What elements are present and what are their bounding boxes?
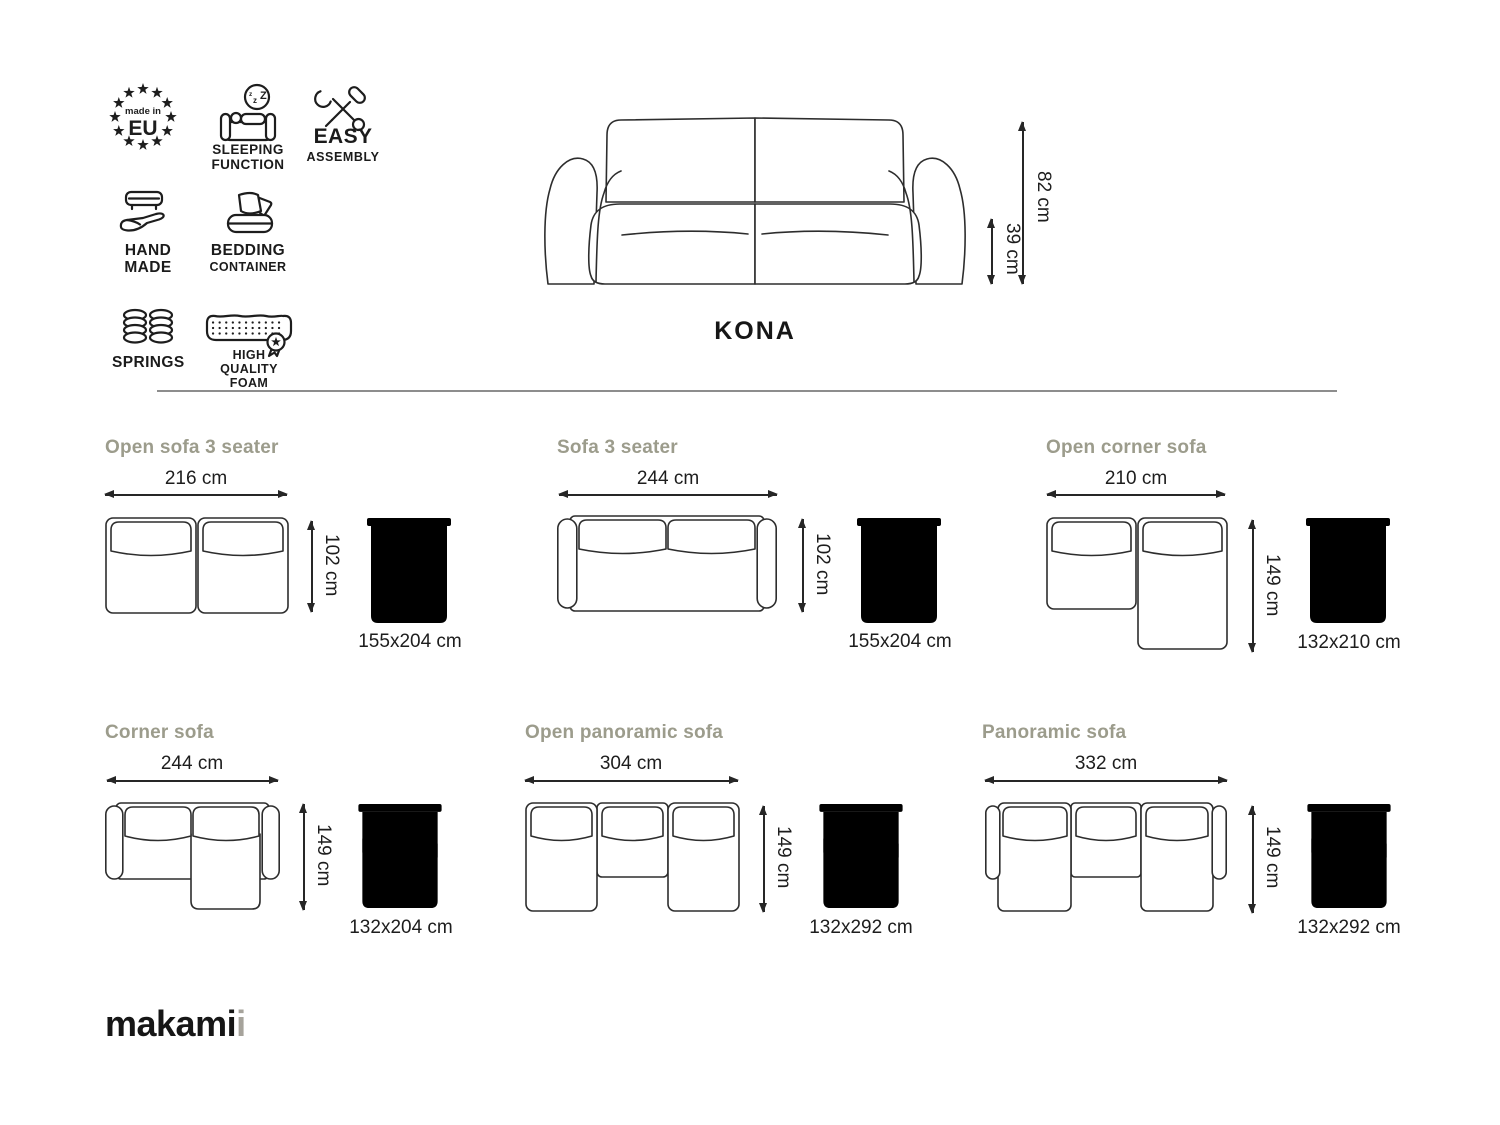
- sofa-top-view-corner: [105, 802, 280, 910]
- depth-label: 149 cm: [312, 824, 334, 886]
- sofa-top-view-panoramic: [985, 802, 1227, 913]
- springs-label: SPRINGS: [112, 354, 184, 372]
- config-title-panoramic-sofa: Panoramic sofa: [982, 722, 1126, 744]
- sleeping-function-label: SLEEPING FUNCTION: [203, 142, 293, 172]
- seat-height-arrow: [991, 219, 993, 284]
- brand-logo: makamii: [105, 1003, 246, 1045]
- back-cushion-left: [606, 118, 755, 202]
- total-height-label: 82 cm: [1032, 171, 1054, 223]
- depth-label: 149 cm: [772, 826, 794, 888]
- bed-size-label: 132x292 cm: [809, 917, 913, 939]
- brand-logo-main: makami: [105, 1003, 236, 1044]
- width-arrow: [559, 494, 777, 496]
- depth-arrow: [802, 519, 804, 612]
- bed-size-label: 132x210 cm: [1297, 632, 1401, 654]
- high-quality-foam-label: HIGH QUALITY FOAM: [203, 348, 295, 390]
- made-in-label: made in: [125, 106, 161, 117]
- sofa-front-view: [540, 103, 970, 295]
- width-arrow: [525, 780, 738, 782]
- hand-made-icon: [116, 190, 172, 240]
- bedding-container-label: BEDDING CONTAINER: [205, 242, 291, 276]
- springs-icon: [122, 308, 174, 350]
- easy-assembly-sublabel: ASSEMBLY: [299, 150, 387, 164]
- width-label: 216 cm: [165, 468, 227, 490]
- width-arrow: [985, 780, 1227, 782]
- easy-assembly-label: EASY: [307, 126, 379, 148]
- width-label: 210 cm: [1105, 468, 1167, 490]
- product-name: KONA: [540, 317, 970, 346]
- bed-icon: [818, 803, 904, 909]
- depth-label: 149 cm: [1261, 554, 1283, 616]
- sofa-top-view-open-corner: [1046, 517, 1228, 651]
- seat-cushion-left: [589, 204, 755, 284]
- config-title-open-sofa-3-seater: Open sofa 3 seater: [105, 437, 279, 459]
- seat-cushion-right: [755, 204, 921, 284]
- sofa-top-view-open-3-seater: [105, 517, 289, 614]
- width-label: 244 cm: [637, 468, 699, 490]
- bed-icon: [856, 517, 942, 624]
- svg-text:z: z: [253, 96, 257, 105]
- sofa-top-view-open-panoramic: [525, 802, 740, 912]
- width-label: 304 cm: [600, 753, 662, 775]
- width-label: 244 cm: [161, 753, 223, 775]
- made-in-eu-icon: made in EU: [108, 83, 178, 153]
- depth-label: 102 cm: [811, 533, 833, 595]
- divider: [157, 390, 1337, 392]
- depth-arrow: [1252, 520, 1254, 652]
- sofa-top-view-3-seater: [557, 515, 777, 613]
- bed-icon: [366, 517, 452, 624]
- width-label: 332 cm: [1075, 753, 1137, 775]
- bed-size-label: 132x292 cm: [1297, 917, 1401, 939]
- width-arrow: [105, 494, 287, 496]
- config-title-open-corner-sofa: Open corner sofa: [1046, 437, 1207, 459]
- bed-icon: [1305, 517, 1391, 624]
- bed-icon: [1306, 803, 1392, 909]
- config-title-open-panoramic-sofa: Open panoramic sofa: [525, 722, 723, 744]
- depth-arrow: [303, 804, 305, 910]
- back-cushion-right: [755, 118, 904, 202]
- config-title-corner-sofa: Corner sofa: [105, 722, 214, 744]
- bedding-container-icon: [221, 192, 277, 240]
- bed-icon: [357, 803, 443, 909]
- width-arrow: [1047, 494, 1225, 496]
- hand-made-label: HAND MADE: [114, 242, 182, 276]
- bed-size-label: 155x204 cm: [848, 631, 952, 653]
- bed-size-label: 132x204 cm: [349, 917, 453, 939]
- brand-logo-accent: i: [236, 1003, 246, 1044]
- depth-arrow: [1252, 806, 1254, 913]
- depth-arrow: [763, 806, 765, 912]
- kona-product-sheet: made in EU z z Z SLEEPING FUNCTION EASY …: [0, 0, 1500, 1125]
- sleeping-function-icon: z z Z: [219, 84, 277, 144]
- depth-label: 102 cm: [320, 534, 342, 596]
- bed-size-label: 155x204 cm: [358, 631, 462, 653]
- width-arrow: [107, 780, 278, 782]
- depth-arrow: [311, 521, 313, 612]
- svg-text:Z: Z: [260, 90, 267, 102]
- eu-label: EU: [128, 117, 157, 140]
- seat-height-label: 39 cm: [1001, 223, 1023, 275]
- config-title-sofa-3-seater: Sofa 3 seater: [557, 437, 678, 459]
- depth-label: 149 cm: [1261, 826, 1283, 888]
